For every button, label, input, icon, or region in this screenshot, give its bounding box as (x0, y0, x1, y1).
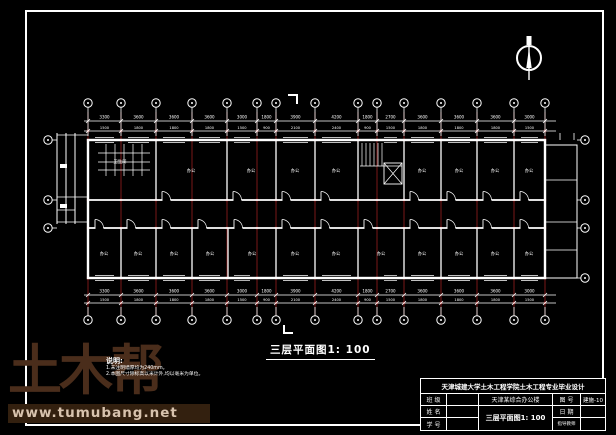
svg-text:卫生间: 卫生间 (114, 158, 127, 165)
notes-line-2: 2.本图尺寸除标高以米计外,均以毫米为单位。 (106, 372, 203, 378)
titleblock-name-value (447, 406, 479, 418)
svg-text:1500: 1500 (525, 126, 535, 130)
svg-text:2700: 2700 (385, 115, 396, 120)
svg-text:3600: 3600 (169, 289, 180, 294)
staircase (360, 143, 402, 184)
svg-text:3600: 3600 (417, 115, 428, 120)
titleblock-project-name: 天津某综合办公楼 (479, 394, 553, 406)
svg-text:办公: 办公 (525, 167, 534, 174)
svg-text:1800: 1800 (491, 298, 501, 302)
watermark-url: www.tumubang.net (8, 404, 210, 423)
svg-text:3000: 3000 (524, 289, 535, 294)
svg-text:1800: 1800 (491, 126, 501, 130)
svg-text:办公: 办公 (247, 167, 256, 174)
svg-text:3600: 3600 (169, 115, 180, 120)
svg-text:3600: 3600 (133, 289, 144, 294)
svg-text:4200: 4200 (331, 115, 342, 120)
svg-text:办公: 办公 (134, 250, 143, 257)
svg-text:办公: 办公 (491, 250, 500, 257)
svg-text:1500: 1500 (525, 298, 535, 302)
svg-text:3600: 3600 (490, 115, 501, 120)
svg-text:2100: 2100 (291, 298, 301, 302)
dimension-strips: 3300150036001800360018003600180030001500… (84, 115, 556, 306)
svg-text:办公: 办公 (332, 167, 341, 174)
svg-text:1800: 1800 (418, 298, 428, 302)
svg-text:1800: 1800 (362, 289, 373, 294)
titleblock-drawing-title: 三层平面图1: 100 (479, 406, 553, 431)
svg-text:3900: 3900 (290, 115, 301, 120)
svg-text:1800: 1800 (261, 289, 272, 294)
svg-text:3600: 3600 (204, 289, 215, 294)
svg-text:办公: 办公 (291, 167, 300, 174)
svg-text:1500: 1500 (386, 126, 396, 130)
svg-text:900: 900 (364, 298, 372, 302)
svg-text:2400: 2400 (332, 298, 342, 302)
svg-text:1800: 1800 (169, 126, 179, 130)
svg-text:3300: 3300 (99, 289, 110, 294)
titleblock-stuno-label: 学 号 (421, 418, 447, 431)
titleblock-advisor-label: 指导教师 (553, 418, 581, 431)
titleblock-class-label: 班 级 (421, 394, 447, 406)
svg-text:办公: 办公 (206, 250, 215, 257)
svg-text:3600: 3600 (133, 115, 144, 120)
cad-drawing-canvas: 3300150036001800360018003600180030001500… (0, 0, 616, 435)
svg-text:2400: 2400 (332, 126, 342, 130)
svg-text:3300: 3300 (99, 115, 110, 120)
svg-text:1500: 1500 (386, 298, 396, 302)
svg-text:办公: 办公 (418, 167, 427, 174)
svg-text:办公: 办公 (377, 250, 386, 257)
svg-text:办公: 办公 (455, 250, 464, 257)
svg-text:1800: 1800 (134, 126, 144, 130)
svg-text:1500: 1500 (237, 126, 247, 130)
svg-text:1800: 1800 (362, 115, 373, 120)
windows (95, 137, 538, 280)
svg-text:3000: 3000 (237, 115, 248, 120)
svg-text:3600: 3600 (454, 115, 465, 120)
svg-text:办公: 办公 (187, 167, 196, 174)
svg-text:1500: 1500 (100, 126, 110, 130)
doors (95, 192, 529, 231)
right-annex (545, 133, 577, 278)
svg-text:4200: 4200 (331, 289, 342, 294)
svg-text:办公: 办公 (455, 167, 464, 174)
svg-text:1800: 1800 (454, 298, 464, 302)
svg-text:办公: 办公 (100, 250, 109, 257)
svg-text:1800: 1800 (418, 126, 428, 130)
titleblock-stuno-value (447, 418, 479, 431)
notes-heading: 说明: (106, 357, 203, 366)
titleblock-class-value (447, 394, 479, 406)
svg-text:2100: 2100 (291, 126, 301, 130)
svg-text:1800: 1800 (454, 126, 464, 130)
svg-text:3600: 3600 (454, 289, 465, 294)
walls (88, 140, 545, 278)
svg-text:1800: 1800 (205, 298, 215, 302)
left-annex (57, 133, 88, 224)
svg-text:1800: 1800 (205, 126, 215, 130)
svg-text:办公: 办公 (418, 250, 427, 257)
title-block: 天津城建大学土木工程学院土木工程专业毕业设计 班 级 天津某综合办公楼 图 号 … (420, 378, 606, 431)
svg-text:办公: 办公 (491, 167, 500, 174)
svg-text:1500: 1500 (237, 298, 247, 302)
notes-block: 说明: 1.未注明墙厚均为240mm。 2.本图尺寸除标高以米计外,均以毫米为单… (106, 357, 203, 378)
titleblock-advisor-value (581, 418, 606, 431)
north-arrow (517, 36, 541, 80)
svg-text:900: 900 (364, 126, 372, 130)
titleblock-figno-value: 建施-10 (581, 394, 606, 406)
svg-text:办公: 办公 (525, 250, 534, 257)
svg-text:办公: 办公 (291, 250, 300, 257)
svg-text:办公: 办公 (170, 250, 179, 257)
svg-text:2700: 2700 (385, 289, 396, 294)
titleblock-date-label: 日 期 (553, 406, 581, 418)
svg-text:3600: 3600 (490, 289, 501, 294)
svg-text:3900: 3900 (290, 289, 301, 294)
svg-text:1500: 1500 (100, 298, 110, 302)
svg-text:900: 900 (263, 126, 271, 130)
titleblock-school-name: 天津城建大学土木工程学院土木工程专业毕业设计 (421, 379, 606, 394)
svg-text:3000: 3000 (237, 289, 248, 294)
svg-text:1800: 1800 (261, 115, 272, 120)
titleblock-date-value (581, 406, 606, 418)
svg-text:3600: 3600 (204, 115, 215, 120)
titleblock-figno-label: 图 号 (553, 394, 581, 406)
svg-text:1800: 1800 (169, 298, 179, 302)
svg-text:3000: 3000 (524, 115, 535, 120)
titleblock-name-label: 姓 名 (421, 406, 447, 418)
svg-text:3600: 3600 (417, 289, 428, 294)
room-labels: 卫生间办公办公办公办公办公办公办公办公办公办公办公办公办公办公办公办公办公办公办… (100, 158, 534, 257)
svg-text:1800: 1800 (134, 298, 144, 302)
axis-bubbles (44, 99, 589, 324)
plan-title-text: 三层平面图1: 100 (270, 344, 371, 356)
svg-text:办公: 办公 (332, 250, 341, 257)
plan-title: 三层平面图1: 100 (266, 342, 375, 360)
svg-text:900: 900 (263, 298, 271, 302)
svg-text:办公: 办公 (248, 250, 257, 257)
